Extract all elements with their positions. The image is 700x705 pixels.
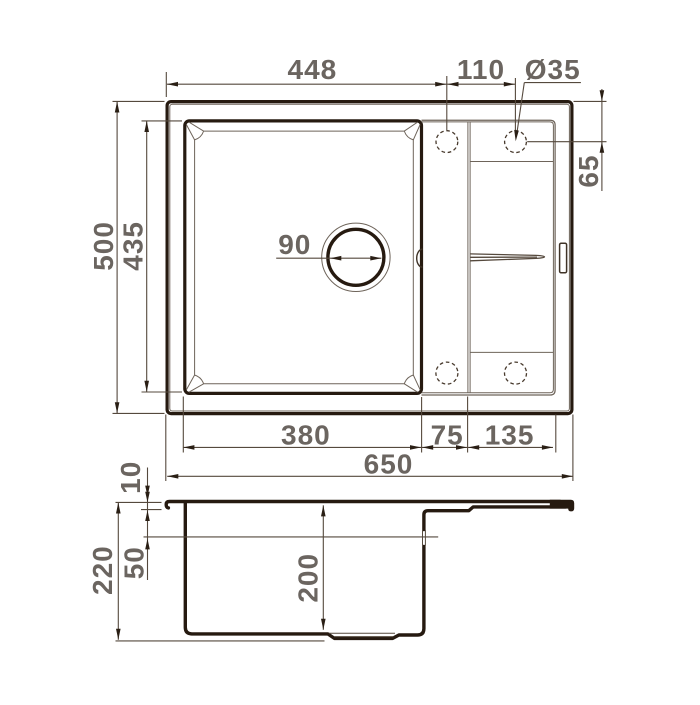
svg-text:650: 650 [364,448,414,479]
svg-text:380: 380 [281,419,331,450]
svg-text:50: 50 [118,546,149,579]
svg-text:435: 435 [117,221,148,271]
svg-text:200: 200 [292,553,323,603]
svg-text:Ø35: Ø35 [525,54,581,85]
svg-text:90: 90 [278,229,311,260]
svg-text:10: 10 [115,461,146,494]
svg-text:110: 110 [457,54,505,85]
svg-text:220: 220 [87,545,118,595]
svg-text:75: 75 [431,419,464,450]
svg-text:65: 65 [573,154,604,187]
svg-text:500: 500 [88,221,119,271]
svg-text:448: 448 [288,54,338,85]
svg-text:135: 135 [485,419,535,450]
